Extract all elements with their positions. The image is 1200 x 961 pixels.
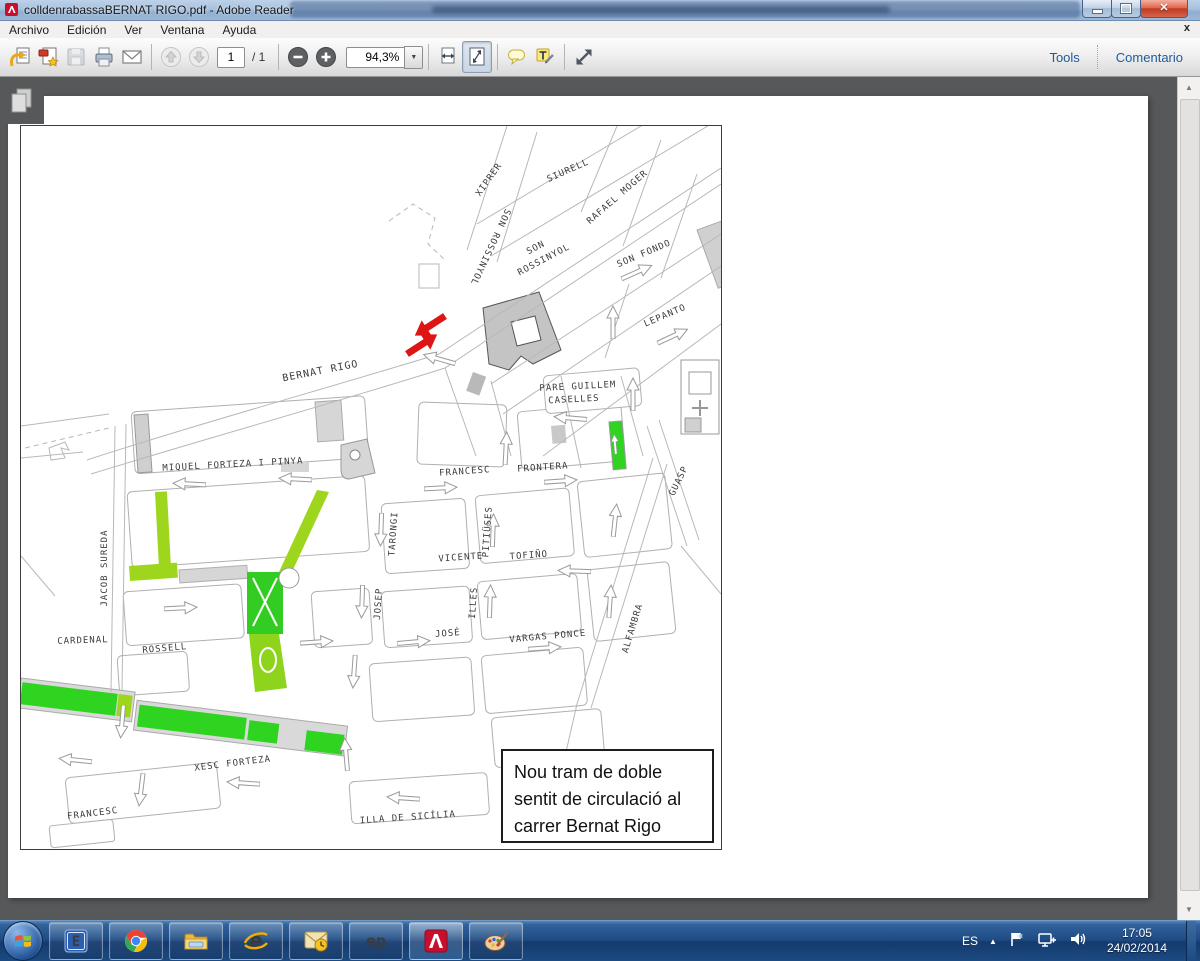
folder-icon [182, 927, 210, 955]
page-total-label: / 1 [252, 50, 265, 64]
street-label: LEPANTO [643, 303, 688, 330]
map-graphic: XIPRERSIURELLRAFAEL MOGERSON ROSSINYOLSO… [21, 126, 721, 849]
page-number-input[interactable]: 1 [217, 47, 245, 68]
annotation-line: carrer Bernat Rigo [514, 813, 712, 840]
svg-text:E: E [72, 934, 80, 950]
street-label: XESC FORTEZA [194, 754, 272, 773]
taskbar-app-chrome[interactable] [109, 922, 163, 960]
taskbar-app-adobe-reader[interactable] [409, 922, 463, 960]
taskbar-app-outlook[interactable] [289, 922, 343, 960]
print-button[interactable] [90, 42, 118, 72]
fit-width-button[interactable] [434, 42, 462, 72]
toolbar: 1 / 1 94,3% ▼ [0, 38, 1200, 77]
adobe-reader-app-icon [4, 2, 19, 17]
comment-bubble-icon [505, 45, 529, 69]
menu-ventana[interactable]: Ventana [151, 22, 213, 38]
annotation-line: Nou tram de doble [514, 759, 712, 786]
network-icon[interactable] [1037, 930, 1057, 953]
desktop: colldenrabassaBERNAT RIGO.pdf - Adobe Re… [0, 0, 1200, 960]
show-desktop-button[interactable] [1186, 921, 1196, 961]
zoom-dropdown-button[interactable]: ▼ [404, 46, 423, 69]
svg-text:ep: ep [366, 932, 386, 952]
zoom-level-input[interactable]: 94,3% [346, 47, 404, 68]
vertical-scrollbar[interactable]: ▲ ▼ [1177, 77, 1200, 920]
restore-icon [1121, 4, 1131, 13]
comment-panel-button[interactable]: Comentario [1099, 50, 1200, 65]
ep-app-icon: ep [361, 927, 391, 955]
previous-page-button[interactable] [157, 42, 185, 72]
window-title: colldenrabassaBERNAT RIGO.pdf - Adobe Re… [24, 3, 294, 17]
tools-panel-button[interactable]: Tools [1032, 50, 1096, 65]
previous-page-icon [159, 45, 183, 69]
annotation-box: Nou tram de doble sentit de circulació a… [501, 749, 714, 843]
scroll-up-button[interactable]: ▲ [1179, 79, 1199, 96]
taskbar-app-explorer[interactable] [169, 922, 223, 960]
chrome-icon [122, 927, 150, 955]
street-label: XIPRER [474, 161, 504, 198]
menu-edicion[interactable]: Edición [58, 22, 115, 38]
email-button[interactable] [118, 42, 146, 72]
next-page-icon [187, 45, 211, 69]
create-pdf-button[interactable] [34, 42, 62, 72]
document-area: XIPRERSIURELLRAFAEL MOGERSON ROSSINYOLSO… [0, 77, 1200, 920]
tray-expand-icon[interactable]: ▲ [989, 937, 997, 946]
comment-bubble-button[interactable] [503, 42, 531, 72]
fullscreen-icon [572, 45, 596, 69]
document-close-icon[interactable]: x [1184, 22, 1190, 34]
text-annotation-button[interactable] [531, 42, 559, 72]
internet-explorer-icon: e [242, 927, 270, 955]
text-annotation-icon [533, 45, 557, 69]
street-label: VICENTE [438, 551, 484, 564]
scroll-down-button[interactable]: ▼ [1179, 901, 1199, 918]
menu-ayuda[interactable]: Ayuda [213, 22, 265, 38]
restore-button[interactable] [1111, 0, 1141, 18]
street-label: ILLES [468, 587, 480, 620]
zoom-in-button[interactable] [312, 42, 340, 72]
save-icon [64, 45, 88, 69]
menu-ver[interactable]: Ver [115, 22, 151, 38]
volume-icon[interactable] [1068, 930, 1088, 953]
open-file-button[interactable] [6, 42, 34, 72]
background-window-title [290, 1, 1080, 18]
close-button[interactable]: ✕ [1140, 0, 1188, 18]
pdf-page: XIPRERSIURELLRAFAEL MOGERSON ROSSINYOLSO… [8, 96, 1148, 898]
e-app-icon: E [62, 927, 90, 955]
create-pdf-icon [36, 45, 60, 69]
scrollbar-thumb[interactable] [1180, 99, 1200, 891]
street-label: JACOB SUREDA [100, 529, 110, 606]
email-icon [120, 45, 144, 69]
annotation-line: sentit de circulació al [514, 786, 712, 813]
action-center-flag-icon[interactable] [1008, 930, 1026, 953]
zoom-out-button[interactable] [284, 42, 312, 72]
minimize-button[interactable] [1082, 0, 1112, 18]
street-label: CARDENAL [57, 635, 109, 647]
fit-page-icon [465, 45, 489, 69]
street-label: SIURELL [546, 157, 591, 184]
scroll-up-icon: ▲ [1185, 83, 1193, 92]
taskbar-app-e[interactable]: E [49, 922, 103, 960]
clock-date: 24/02/2014 [1107, 941, 1167, 956]
windows-logo-icon [13, 931, 33, 951]
street-label: FRANCESC [439, 465, 491, 479]
zoom-out-icon [286, 45, 310, 69]
taskbar-app-ie[interactable]: e [229, 922, 283, 960]
zoom-in-icon [314, 45, 338, 69]
scroll-down-icon: ▼ [1185, 905, 1193, 914]
system-tray: ES ▲ 17:05 24/02/2014 [962, 921, 1200, 961]
adobe-reader-icon [422, 927, 450, 955]
taskbar-app-paint[interactable] [469, 922, 523, 960]
menu-archivo[interactable]: Archivo [0, 22, 58, 38]
taskbar: E e [0, 920, 1200, 961]
open-file-icon [8, 45, 32, 69]
paint-icon [482, 927, 510, 955]
red-double-direction-arrows [402, 308, 450, 361]
pages-icon [7, 85, 37, 117]
fit-width-icon [436, 45, 460, 69]
fit-page-button[interactable] [462, 41, 492, 73]
street-map: XIPRERSIURELLRAFAEL MOGERSON ROSSINYOLSO… [20, 125, 722, 850]
page-thumbnails-button[interactable] [0, 77, 44, 124]
print-icon [92, 45, 116, 69]
clock-time: 17:05 [1107, 926, 1167, 941]
next-page-button[interactable] [185, 42, 213, 72]
minimize-icon [1092, 9, 1103, 14]
title-bar: colldenrabassaBERNAT RIGO.pdf - Adobe Re… [0, 0, 1200, 21]
street-label: BERNAT RIGO [282, 359, 360, 385]
save-button[interactable] [62, 42, 90, 72]
language-indicator[interactable]: ES [962, 934, 978, 948]
start-button[interactable] [3, 921, 43, 961]
close-icon: ✕ [1159, 3, 1168, 14]
chevron-down-icon: ▼ [410, 54, 417, 61]
taskbar-app-ep[interactable]: ep [349, 922, 403, 960]
clock[interactable]: 17:05 24/02/2014 [1099, 926, 1175, 956]
fullscreen-button[interactable] [570, 42, 598, 72]
outlook-icon [302, 927, 330, 955]
street-label: GUASP [668, 465, 691, 498]
menu-bar: Archivo Edición Ver Ventana Ayuda x [0, 21, 1200, 39]
